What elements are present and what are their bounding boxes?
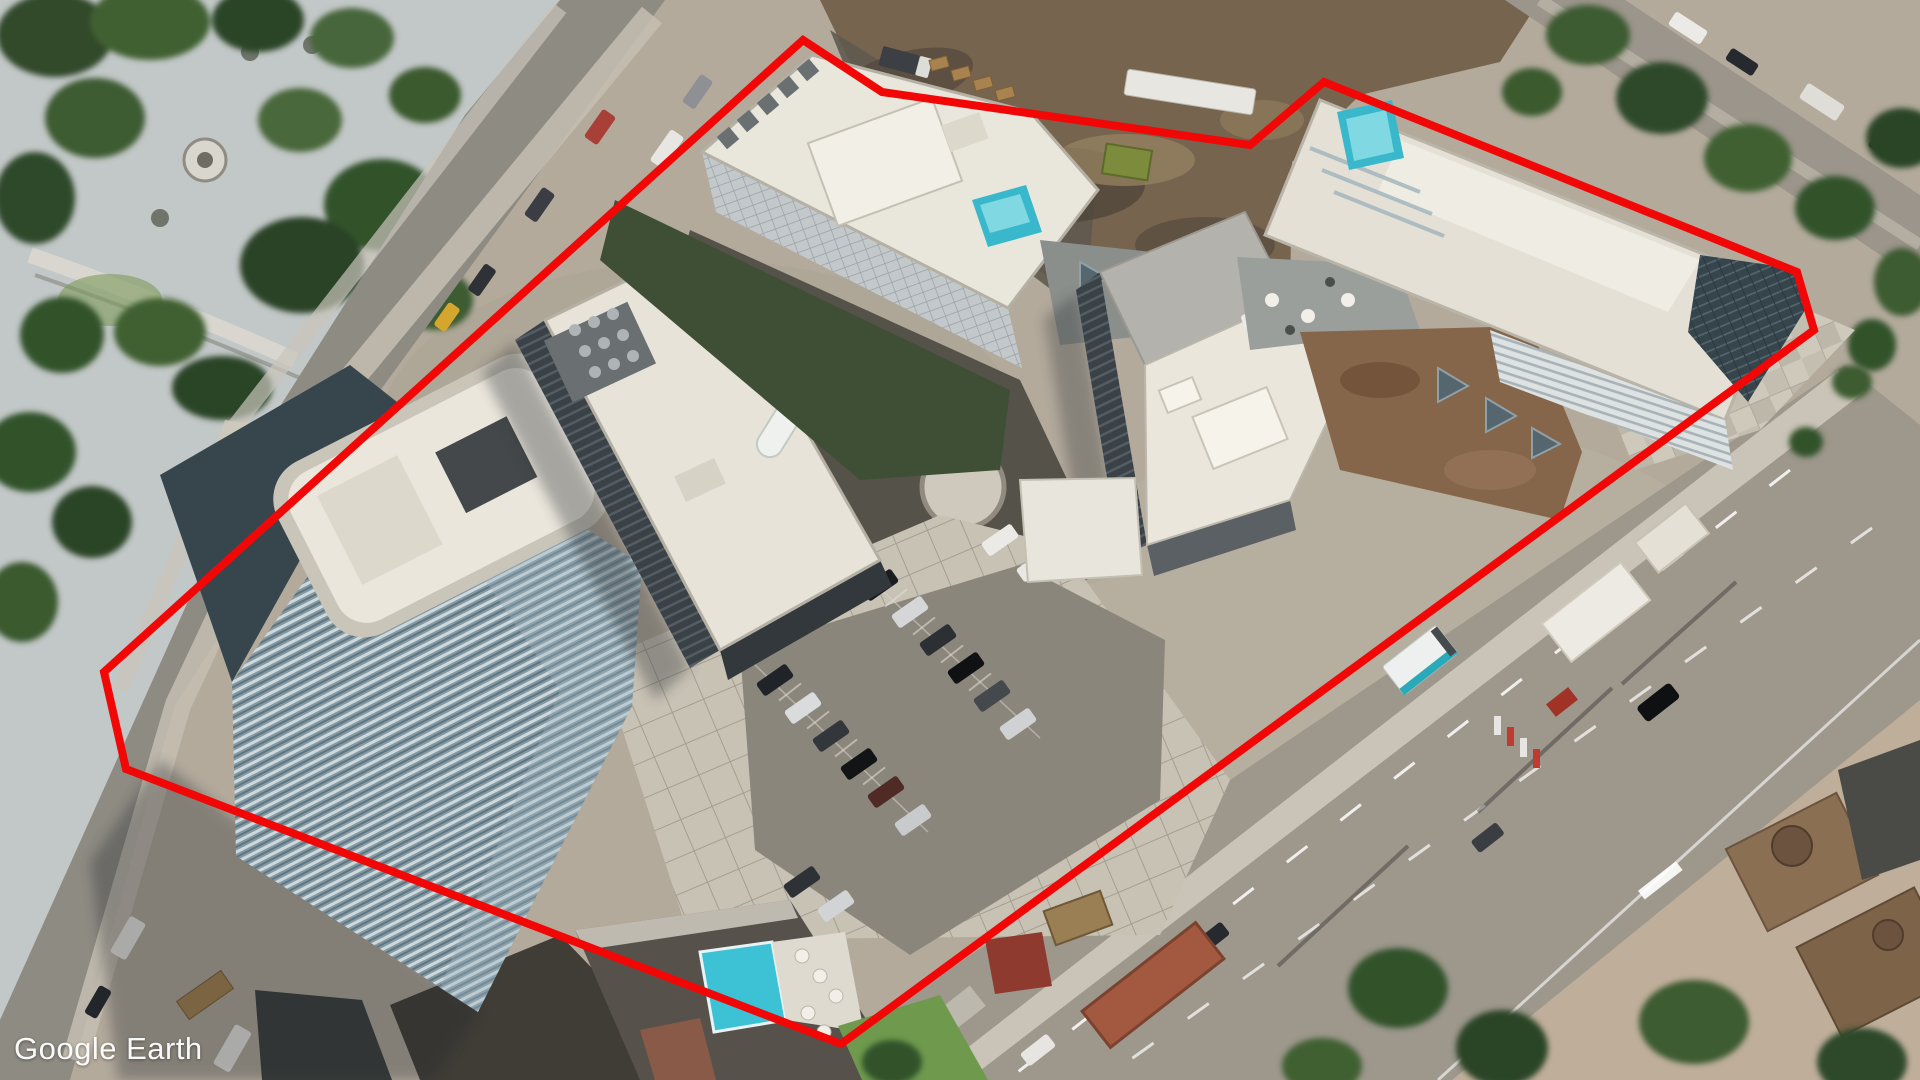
google-earth-watermark: Google Earth [14, 1031, 203, 1067]
red-awning [985, 932, 1052, 994]
park-gazebo [184, 139, 226, 181]
google-earth-viewport[interactable]: Google Earth [0, 0, 1920, 1080]
aerial-map-canvas[interactable] [0, 0, 1920, 1080]
entry-canopy [1020, 478, 1142, 582]
turret-roof [1772, 826, 1812, 866]
green-dumpster [1102, 144, 1152, 181]
